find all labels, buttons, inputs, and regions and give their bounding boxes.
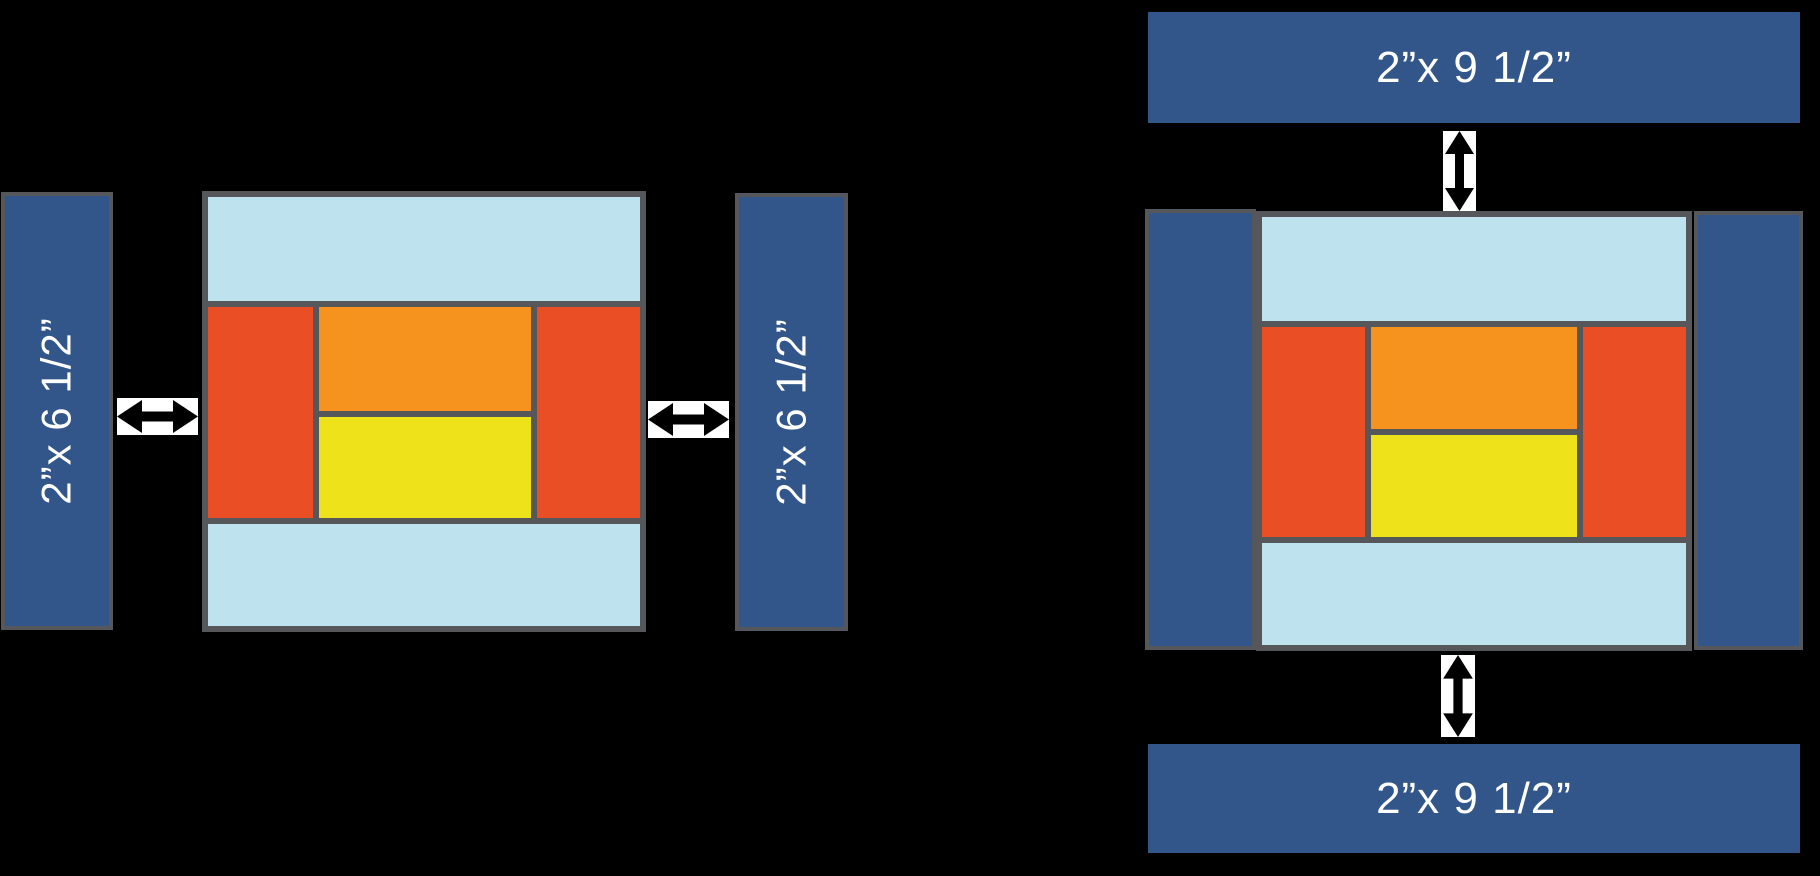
side-strip-right-label: 2”x 6 1/2” xyxy=(768,318,816,505)
attach-arrow-left-box xyxy=(117,398,198,435)
vertical-double-arrow-icon xyxy=(1441,655,1475,737)
horizontal-double-arrow-icon xyxy=(117,398,198,435)
attach-arrow-right-box xyxy=(648,401,729,438)
block2-right-red-piece xyxy=(1583,327,1686,537)
block1-right-red-piece xyxy=(537,307,640,518)
quilt-block-step1 xyxy=(202,191,646,632)
block1-orange-piece xyxy=(319,307,531,411)
border-bar-bottom: 2”x 9 1/2” xyxy=(1148,744,1800,853)
block2-orange-piece xyxy=(1371,327,1577,429)
quilt-block-step2 xyxy=(1256,211,1692,651)
block2-yellow-piece xyxy=(1371,435,1577,537)
block1-yellow-piece xyxy=(319,417,531,518)
sewn-side-strip-left xyxy=(1145,209,1256,650)
side-strip-right: 2”x 6 1/2” xyxy=(735,193,848,631)
border-bar-bottom-label: 2”x 9 1/2” xyxy=(1376,774,1572,824)
block1-center-unit xyxy=(319,307,531,518)
border-bar-top: 2”x 9 1/2” xyxy=(1148,12,1800,123)
block2-bottom-strip-piece xyxy=(1262,543,1686,645)
border-bar-top-label: 2”x 9 1/2” xyxy=(1376,43,1572,93)
attach-arrow-bottom-box xyxy=(1441,655,1475,737)
block2-center-unit xyxy=(1371,327,1577,537)
block2-top-strip-piece xyxy=(1262,217,1686,321)
block1-left-red-piece xyxy=(208,307,313,518)
block1-top-strip-piece xyxy=(208,197,640,301)
quilt-assembly-diagram: 2”x 6 1/2” 2”x 6 1/2” 2”x 9 1/2” xyxy=(0,0,1820,876)
attach-arrow-top-box xyxy=(1443,131,1476,211)
block2-left-red-piece xyxy=(1262,327,1365,537)
vertical-double-arrow-icon xyxy=(1443,131,1476,211)
side-strip-left-label: 2”x 6 1/2” xyxy=(33,317,81,504)
sewn-side-strip-right xyxy=(1694,211,1803,650)
horizontal-double-arrow-icon xyxy=(648,401,729,438)
block1-bottom-strip-piece xyxy=(208,524,640,626)
side-strip-left: 2”x 6 1/2” xyxy=(1,192,113,630)
